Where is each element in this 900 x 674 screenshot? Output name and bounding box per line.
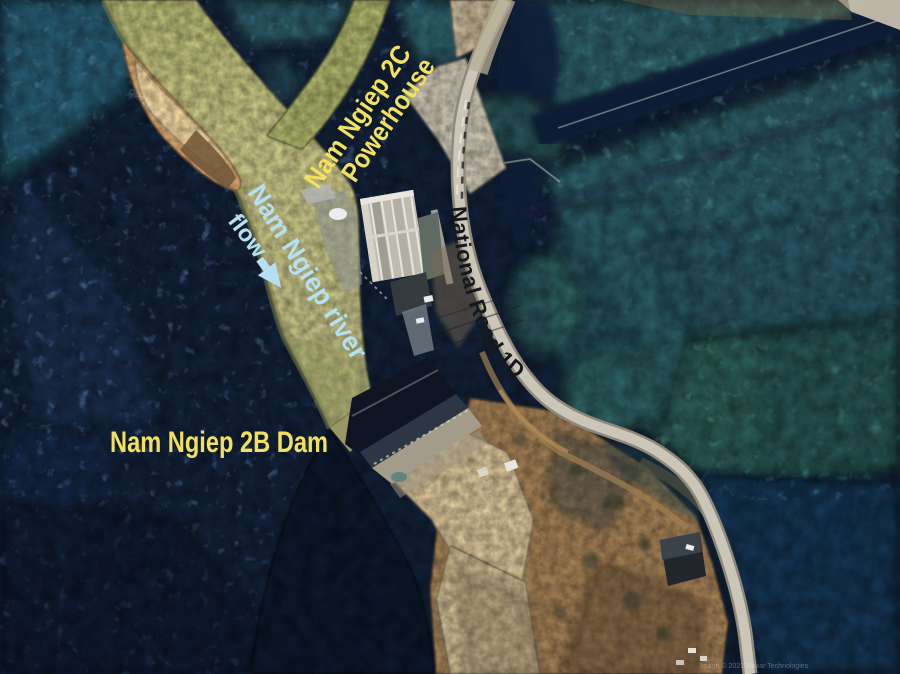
svg-text:Nam Ngiep 2B Dam: Nam Ngiep 2B Dam (110, 426, 328, 459)
svg-text:Image © 2021 Maxar Technologie: Image © 2021 Maxar Technologies (700, 662, 809, 670)
